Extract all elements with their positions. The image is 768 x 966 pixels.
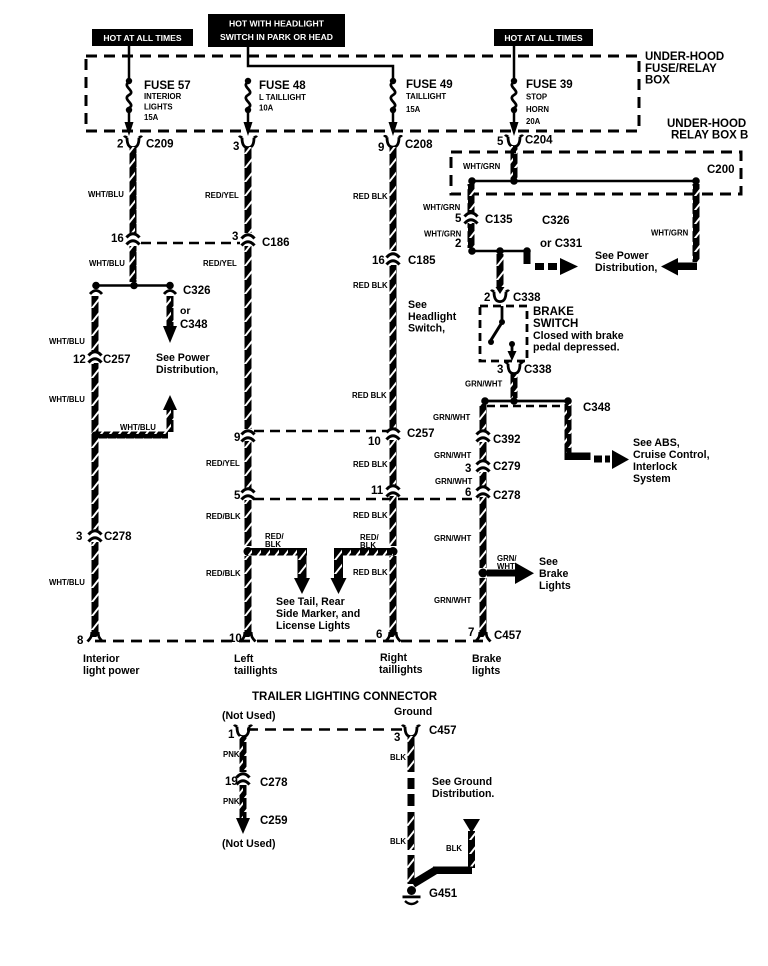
svg-text:20A: 20A (526, 117, 541, 126)
svg-text:6: 6 (376, 629, 382, 641)
svg-text:BRAKE: BRAKE (533, 306, 574, 318)
svg-text:C338: C338 (524, 364, 552, 376)
svg-text:FUSE/RELAY: FUSE/RELAY (645, 63, 717, 75)
svg-text:15A: 15A (406, 105, 421, 114)
svg-text:C326: C326 (183, 285, 211, 297)
svg-text:10: 10 (229, 633, 242, 645)
svg-text:C457: C457 (494, 630, 522, 642)
svg-text:3: 3 (232, 231, 238, 243)
svg-text:lights: lights (472, 665, 500, 677)
svg-text:SWITCH IN PARK OR HEAD: SWITCH IN PARK OR HEAD (220, 32, 333, 42)
svg-text:RED BLK: RED BLK (352, 391, 387, 400)
svg-text:BLK: BLK (446, 844, 462, 853)
svg-text:Side Marker, and: Side Marker, and (276, 608, 360, 620)
svg-text:C278: C278 (104, 531, 132, 543)
svg-text:Distribution.: Distribution. (432, 788, 494, 800)
svg-text:3: 3 (465, 463, 471, 475)
svg-text:BLK: BLK (390, 837, 406, 846)
svg-text:FUSE 49: FUSE 49 (406, 79, 453, 91)
svg-text:5: 5 (497, 136, 504, 148)
svg-text:C209: C209 (146, 139, 174, 151)
svg-text:HOT AT ALL TIMES: HOT AT ALL TIMES (504, 33, 583, 43)
svg-text:C257: C257 (407, 428, 435, 440)
svg-text:System: System (633, 473, 671, 485)
svg-text:8: 8 (77, 635, 84, 647)
svg-text:Interlock: Interlock (633, 461, 677, 473)
svg-text:5: 5 (234, 490, 241, 502)
svg-text:See Tail, Rear: See Tail, Rear (276, 596, 345, 608)
svg-text:C457: C457 (429, 725, 457, 737)
svg-text:C185: C185 (408, 255, 436, 267)
svg-text:See Power: See Power (595, 250, 649, 262)
svg-text:light power: light power (83, 665, 140, 677)
svg-text:FUSE 39: FUSE 39 (526, 79, 573, 91)
svg-text:taillights: taillights (379, 664, 423, 676)
svg-text:15A: 15A (144, 113, 159, 122)
svg-text:1: 1 (228, 729, 235, 741)
svg-text:PNK: PNK (223, 797, 240, 806)
svg-text:RED BLK: RED BLK (353, 511, 388, 520)
svg-text:RED BLK: RED BLK (353, 192, 388, 201)
svg-text:LIGHTS: LIGHTS (144, 103, 173, 112)
svg-text:UNDER-HOOD: UNDER-HOOD (645, 51, 724, 63)
svg-text:C348: C348 (583, 402, 611, 414)
svg-text:3: 3 (497, 364, 503, 376)
svg-text:See: See (539, 556, 558, 568)
svg-text:RED/YEL: RED/YEL (203, 259, 237, 268)
svg-text:HOT AT ALL TIMES: HOT AT ALL TIMES (103, 33, 182, 43)
svg-text:C392: C392 (493, 434, 521, 446)
svg-text:taillights: taillights (234, 665, 278, 677)
svg-text:2: 2 (117, 139, 123, 151)
svg-text:Distribution,: Distribution, (595, 262, 657, 274)
svg-text:7: 7 (468, 627, 474, 639)
svg-text:RED/BLK: RED/BLK (206, 569, 241, 578)
svg-text:GRN/WHT: GRN/WHT (434, 451, 471, 460)
svg-text:11: 11 (371, 485, 384, 497)
svg-text:BLK: BLK (265, 540, 281, 549)
svg-text:3: 3 (76, 531, 82, 543)
svg-text:See: See (408, 299, 427, 311)
svg-text:GRN/WHT: GRN/WHT (465, 380, 502, 389)
svg-text:WHT/BLU: WHT/BLU (49, 578, 85, 587)
svg-text:TRAILER LIGHTING CONNECTOR: TRAILER LIGHTING CONNECTOR (252, 691, 438, 703)
svg-text:GRN/WHT: GRN/WHT (433, 413, 470, 422)
svg-text:GRN/WHT: GRN/WHT (434, 596, 471, 605)
svg-text:or: or (180, 305, 191, 317)
svg-text:3: 3 (394, 732, 400, 744)
svg-text:BLK: BLK (360, 541, 376, 550)
svg-text:Switch,: Switch, (408, 323, 445, 335)
svg-text:RELAY BOX B: RELAY BOX B (671, 130, 748, 142)
svg-text:2: 2 (484, 292, 490, 304)
svg-text:12: 12 (73, 354, 86, 366)
svg-text:See ABS,: See ABS, (633, 437, 680, 449)
svg-text:SWITCH: SWITCH (533, 318, 578, 330)
svg-text:9: 9 (234, 432, 240, 444)
svg-text:GRN/WHT: GRN/WHT (435, 477, 472, 486)
svg-text:Brake: Brake (472, 653, 502, 665)
svg-text:C204: C204 (525, 135, 553, 147)
svg-text:WHT/GRN: WHT/GRN (423, 203, 461, 212)
svg-text:C257: C257 (103, 354, 131, 366)
svg-text:WHT: WHT (497, 562, 515, 571)
svg-text:3: 3 (233, 141, 239, 153)
svg-text:2: 2 (455, 238, 461, 250)
svg-text:RED/YEL: RED/YEL (205, 191, 239, 200)
svg-text:BLK: BLK (390, 753, 406, 762)
svg-text:WHT/GRN: WHT/GRN (463, 162, 501, 171)
svg-text:WHT/BLU: WHT/BLU (49, 395, 85, 404)
svg-text:C208: C208 (405, 139, 433, 151)
svg-text:STOP: STOP (526, 93, 547, 102)
svg-text:C200: C200 (707, 164, 735, 176)
svg-text:C278: C278 (260, 777, 288, 789)
svg-text:See Power: See Power (156, 352, 210, 364)
svg-text:10A: 10A (259, 104, 274, 113)
svg-text:GRN/WHT: GRN/WHT (434, 534, 471, 543)
svg-text:C278: C278 (493, 490, 521, 502)
svg-text:or C331: or C331 (540, 238, 583, 250)
svg-text:Brake: Brake (539, 568, 569, 580)
svg-text:9: 9 (378, 142, 384, 154)
svg-text:Cruise Control,: Cruise Control, (633, 449, 710, 461)
svg-text:WHT/BLU: WHT/BLU (89, 259, 125, 268)
svg-text:Ground: Ground (394, 706, 432, 718)
svg-text:C326: C326 (542, 215, 570, 227)
svg-text:BOX: BOX (645, 75, 670, 87)
svg-text:See Ground: See Ground (432, 776, 492, 788)
svg-text:RED BLK: RED BLK (353, 568, 388, 577)
svg-text:16: 16 (372, 255, 385, 267)
svg-text:RED/BLK: RED/BLK (206, 512, 241, 521)
svg-text:Distribution,: Distribution, (156, 364, 218, 376)
svg-text:C135: C135 (485, 214, 513, 226)
svg-text:WHT/BLU: WHT/BLU (49, 337, 85, 346)
svg-text:License Lights: License Lights (276, 620, 350, 632)
svg-text:WHT/GRN: WHT/GRN (651, 229, 689, 238)
svg-text:19: 19 (225, 776, 238, 788)
svg-text:(Not Used): (Not Used) (222, 710, 276, 722)
svg-text:Lights: Lights (539, 580, 571, 592)
svg-text:L TAILLIGHT: L TAILLIGHT (259, 93, 306, 102)
svg-text:WHT/BLU: WHT/BLU (88, 190, 124, 199)
svg-text:INTERIOR: INTERIOR (144, 92, 182, 101)
svg-text:pedal depressed.: pedal depressed. (533, 342, 620, 354)
svg-text:HOT WITH HEADLIGHT: HOT WITH HEADLIGHT (229, 19, 325, 29)
svg-text:G451: G451 (429, 888, 458, 900)
svg-text:FUSE 48: FUSE 48 (259, 80, 306, 92)
svg-text:PNK: PNK (223, 750, 240, 759)
svg-text:RED/YEL: RED/YEL (206, 459, 240, 468)
svg-text:FUSE 57: FUSE 57 (144, 80, 191, 92)
svg-text:HORN: HORN (526, 105, 549, 114)
svg-text:WHT/BLU: WHT/BLU (120, 423, 156, 432)
svg-text:C186: C186 (262, 237, 290, 249)
svg-text:Closed with brake: Closed with brake (533, 330, 624, 342)
svg-text:Headlight: Headlight (408, 311, 457, 323)
svg-text:6: 6 (465, 487, 471, 499)
svg-text:(Not Used): (Not Used) (222, 838, 276, 850)
svg-text:C348: C348 (180, 319, 208, 331)
svg-text:10: 10 (368, 436, 381, 448)
svg-text:16: 16 (111, 233, 124, 245)
svg-text:5: 5 (455, 213, 462, 225)
svg-text:Interior: Interior (83, 653, 120, 665)
svg-text:Right: Right (380, 652, 408, 664)
svg-text:TAILLIGHT: TAILLIGHT (406, 92, 446, 101)
svg-text:C279: C279 (493, 461, 521, 473)
svg-text:C259: C259 (260, 815, 288, 827)
svg-text:RED BLK: RED BLK (353, 460, 388, 469)
svg-text:C338: C338 (513, 292, 541, 304)
svg-text:RED BLK: RED BLK (353, 281, 388, 290)
svg-text:Left: Left (234, 653, 254, 665)
svg-text:UNDER-HOOD: UNDER-HOOD (667, 118, 746, 130)
